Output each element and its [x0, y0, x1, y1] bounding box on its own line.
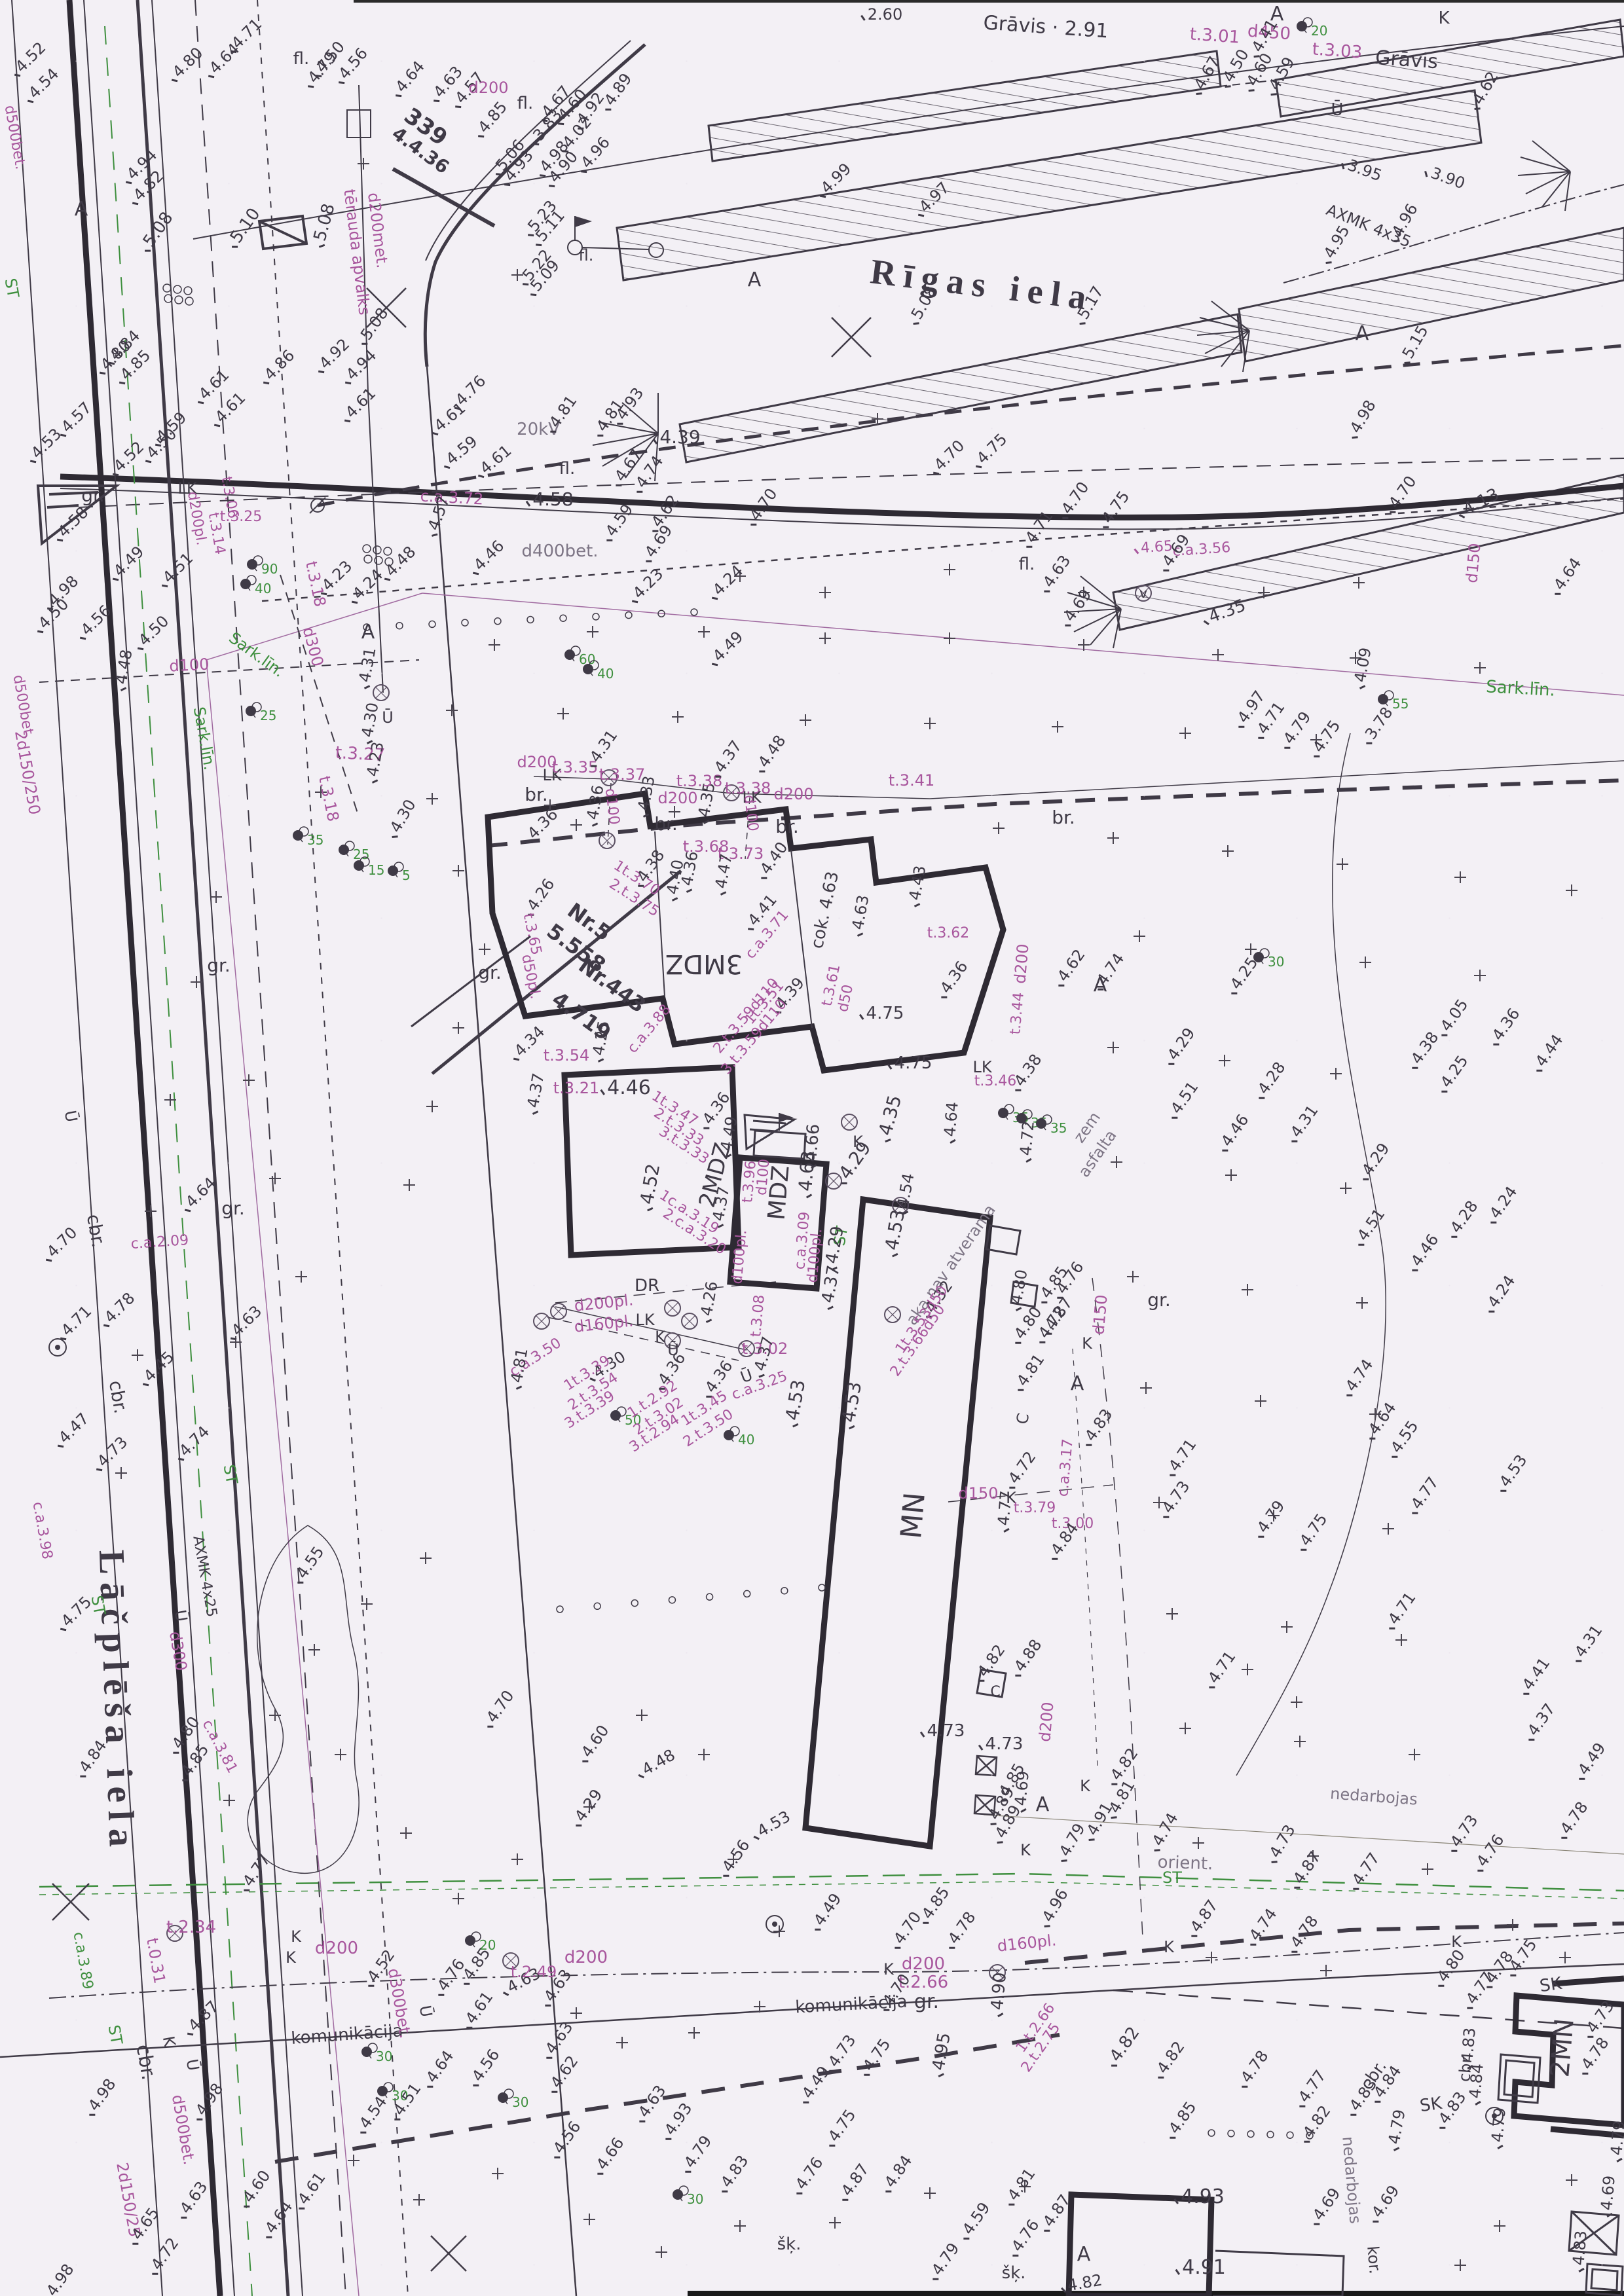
map-annotation: ST: [3, 277, 22, 299]
map-annotation: Ū: [172, 1609, 190, 1622]
spot-elevation-label: 4.74: [1089, 951, 1127, 995]
spot-elevation-label: 5.08: [309, 202, 337, 251]
spot-elevation-label: 4.84: [1466, 2063, 1486, 2107]
spot-elevation-label: 4.28: [1443, 1198, 1481, 1243]
map-annotation: t.0.31: [144, 1937, 168, 1985]
spot-elevation-label: 4.47: [711, 852, 734, 898]
map-annotation: t.3.44: [1008, 992, 1027, 1035]
spot-elevation-label: 4.28: [1250, 1059, 1288, 1104]
spot-elevation-label: 4.48: [632, 1747, 678, 1782]
spot-elevation-label: 4.75: [1094, 488, 1132, 533]
spot-elevation-label: 4.71: [1380, 1590, 1418, 1634]
spot-elevation-label: 4.51: [154, 550, 196, 592]
map-annotation: K: [883, 1961, 894, 1977]
map-annotation: ST: [221, 1463, 240, 1485]
spot-elevation-label: 4.73: [919, 1722, 965, 1740]
spot-elevation-label: 4.74: [1145, 1810, 1181, 1856]
spot-elevation-label: 4.24: [1482, 1184, 1520, 1228]
map-annotation: t.3.41: [889, 773, 934, 788]
spot-elevation-label: 4.67: [1187, 54, 1223, 100]
spot-elevation-label: 4.70: [742, 486, 780, 530]
spot-elevation-label: 4.64: [200, 41, 242, 82]
spot-elevation-label: 4.56: [72, 602, 114, 644]
spot-elevation-label: 4.43: [905, 864, 928, 910]
spot-elevation-label: 4.72: [1017, 1120, 1037, 1165]
spot-elevation-label: 4.24: [1480, 1273, 1518, 1317]
spot-elevation-label: 4.70: [38, 1224, 80, 1266]
spot-elevation-label: 4.87: [834, 2161, 872, 2206]
spot-elevation-label: 4.79: [1384, 2108, 1407, 2154]
map-annotation: C: [990, 1685, 1000, 1700]
spot-elevation-label: 4.70: [925, 437, 967, 479]
spot-elevation-label: 4.75: [52, 1594, 94, 1635]
spot-elevation-label: 4.79: [924, 2240, 962, 2285]
spot-elevation-label: 4.23: [624, 566, 666, 608]
spot-elevation-label: 4.77: [1344, 1850, 1382, 1895]
spot-elevation-label: 4.36: [519, 806, 561, 848]
map-annotation: šķ.: [777, 2236, 802, 2253]
spot-elevation-label: 4.69: [1364, 2183, 1402, 2227]
map-annotation: MN: [897, 1491, 930, 1540]
map-annotation: fl.: [1019, 556, 1035, 573]
spot-elevation-label: 4.53: [747, 1808, 793, 1844]
map-annotation: Ū: [62, 1109, 80, 1123]
spot-elevation-label: 4.80: [1430, 1947, 1467, 1992]
spot-elevation-label: 4.82: [1102, 2024, 1143, 2072]
spot-elevation-label: 4.58: [524, 490, 573, 509]
map-annotation: kor.: [1365, 2246, 1383, 2275]
spot-elevation-label: 4.69: [637, 522, 675, 567]
spot-elevation-label: 4.98: [1343, 397, 1378, 443]
spot-elevation-label: 4.53: [881, 1208, 908, 1260]
spot-elevation-label: 4.64: [941, 1101, 961, 1146]
spot-elevation-label: 4.44: [1528, 1032, 1566, 1076]
spot-elevation-label: 4.80: [164, 45, 206, 86]
spot-elevation-label: 4.64: [177, 1175, 219, 1216]
spot-elevation-label: 4.64: [418, 2048, 456, 2092]
spot-elevation-label: 4.48: [111, 648, 134, 694]
spot-elevation-label: 4.46: [465, 538, 507, 579]
spot-elevation-label: 4.79: [1052, 1821, 1088, 1867]
map-annotation: K: [291, 1929, 301, 1944]
spot-elevation-label: 4.73: [1154, 1478, 1192, 1523]
spot-elevation-label: 4.60: [235, 2168, 273, 2212]
spot-elevation-label: 4.81: [542, 393, 580, 437]
map-annotation: K: [1451, 1934, 1462, 1950]
map-annotation: d50: [836, 983, 856, 1013]
spot-elevation-label: 4.29: [567, 1787, 605, 1831]
spot-elevation-label: 4.37: [707, 738, 745, 782]
map-annotation: fl.: [517, 95, 534, 112]
spot-elevation-label: 4.64: [387, 58, 427, 101]
spot-elevation-label: 4.75: [1292, 1511, 1330, 1556]
spot-elevation-label: 4.59: [955, 2200, 993, 2244]
spot-elevation-label: 4.61: [337, 385, 378, 427]
map-annotation: d160pl.: [997, 1932, 1058, 1954]
spot-elevation-label: 4.71: [52, 1303, 94, 1345]
spot-elevation-label: 4.70: [1381, 473, 1419, 518]
spot-elevation-label: 4.95: [1317, 223, 1352, 268]
spot-elevation-label: 4.78: [96, 1290, 138, 1332]
spot-elevation-label: 4.05: [1433, 996, 1471, 1041]
map-annotation: K: [1438, 10, 1449, 27]
spot-elevation-label: 4.75: [1305, 718, 1343, 762]
spot-elevation-label: 4.49: [1570, 1740, 1608, 1785]
map-annotation: d200: [773, 786, 813, 802]
spot-elevation-label: 4.48: [377, 543, 418, 585]
spot-elevation-label: 4.75: [968, 431, 1010, 473]
spot-elevation-label: 4.89: [597, 71, 635, 115]
spot-elevation-label: 4.74: [1338, 1357, 1376, 1401]
spot-elevation-label: 4.84: [1043, 1520, 1081, 1565]
spot-elevation-label: 4.59: [598, 501, 636, 546]
spot-elevation-label: 4.78: [1283, 1913, 1321, 1958]
spot-elevation-label: 4.63: [223, 1303, 265, 1345]
map-annotation: br.: [654, 815, 678, 833]
map-annotation: d200: [1037, 1702, 1056, 1743]
spot-elevation-label: 4.64: [1546, 555, 1584, 600]
map-annotation: C: [1014, 1412, 1032, 1426]
spot-elevation-label: 4.56: [714, 1837, 752, 1882]
map-annotation: br.: [525, 786, 548, 804]
map-annotation: cbr.: [132, 2043, 158, 2081]
spot-elevation-label: 4.79: [1608, 2120, 1624, 2164]
spot-elevation-label: 4.61: [290, 2170, 328, 2214]
map-annotation: K: [853, 1134, 863, 1150]
map-annotation: d500bet.: [2, 104, 28, 170]
spot-elevation-label: 4.53: [838, 1380, 865, 1432]
map-annotation: d500bet.: [170, 2094, 197, 2166]
spot-elevation-label: 4.49: [794, 2064, 832, 2108]
spot-elevation-label: 4.79: [1488, 2107, 1508, 2151]
spot-elevation-label: 4.90: [988, 1972, 1009, 2020]
map-annotation: t.3.37: [599, 767, 645, 782]
spot-elevation-label: 4.63: [848, 894, 871, 939]
map-annotation: d100pl.: [730, 1230, 749, 1285]
map-annotation: d50pl.: [519, 953, 542, 1000]
map-annotation: t.3.18: [316, 774, 341, 823]
spot-elevation-label: 5.08: [136, 210, 176, 257]
map-annotation: Sark.līn.: [1486, 678, 1556, 699]
spot-elevation-label: 4.78: [1553, 1799, 1591, 1844]
spot-elevation-label: 4.76: [1004, 2217, 1042, 2261]
map-annotation: A: [1356, 324, 1369, 344]
spot-elevation-label: 4.62: [1466, 69, 1501, 115]
map-annotation: cbr.: [84, 1212, 107, 1248]
spot-elevation-label: 4.46: [599, 1078, 651, 1098]
spot-elevation-label: 4.51: [386, 2081, 424, 2125]
spot-elevation-label: 4.34: [506, 1023, 547, 1065]
spot-elevation-label: 4.96: [1035, 1886, 1071, 1932]
spot-elevation-label: 4.31: [355, 646, 378, 692]
spot-elevation-label: 4.75: [886, 1055, 932, 1072]
map-annotation: Sark.līn.: [191, 706, 218, 771]
spot-elevation-label: 3.95: [1338, 154, 1384, 183]
map-annotation: AXMK 4x25: [190, 1535, 218, 1618]
spot-elevation-label: 4.75: [858, 1005, 904, 1022]
map-annotation: K: [1082, 1336, 1092, 1351]
spot-elevation-label: 4.91: [1173, 2258, 1226, 2278]
spot-elevation-label: 4.26: [697, 1280, 720, 1326]
spot-elevation-label: 4.77: [1403, 1474, 1441, 1519]
spot-elevation-label: 4.40: [663, 858, 686, 904]
spot-elevation-label: 4.37: [1520, 1701, 1558, 1745]
spot-elevation-label: 4.61: [458, 1989, 496, 2033]
spot-elevation-label: 4.73: [1263, 1822, 1298, 1868]
map-annotation: A: [1036, 1795, 1050, 1815]
map-annotation: ST: [1162, 1870, 1182, 1886]
map-annotation: br.: [1052, 809, 1075, 827]
spot-elevation-label: 4.36: [932, 958, 970, 1003]
map-annotation: d200: [315, 1940, 358, 1957]
spot-elevation-label: 4.74: [1242, 1906, 1280, 1950]
spot-elevation-label: 4.47: [50, 1410, 92, 1452]
spot-elevation-label: 4.25: [1433, 1053, 1471, 1097]
spot-elevation-label: 4.36: [1485, 1006, 1522, 1050]
map-annotation: d200: [657, 790, 697, 806]
spot-elevation-label: 4.75: [855, 2036, 893, 2081]
map-annotation: K: [1020, 1842, 1031, 1858]
map-annotation: Ū: [1331, 101, 1343, 118]
map-annotation: d200: [1012, 943, 1031, 985]
map-annotation: gr.: [207, 957, 231, 975]
spot-elevation-label: 4.69: [1598, 2175, 1617, 2219]
map-annotation: A: [361, 623, 375, 642]
map-annotation: LK: [635, 1312, 654, 1328]
spot-elevation-label: 4.63: [1035, 553, 1073, 597]
spot-elevation-label: 4.82: [970, 1642, 1008, 1686]
spot-elevation-label: 4.69: [1305, 2185, 1343, 2230]
map-annotation: d100: [741, 794, 760, 832]
spot-elevation-label: 4.49: [105, 543, 147, 585]
map-annotation: Ū: [382, 710, 394, 725]
spot-elevation-label: 5.10: [223, 206, 263, 253]
map-annotation: t.2.49: [511, 1964, 557, 1980]
spot-elevation-label: 4.52: [637, 1162, 663, 1214]
spot-elevation-label: 4.93: [1172, 2187, 1225, 2207]
spot-elevation-label: 4.78: [940, 1909, 978, 1954]
spot-elevation-label: 4.81: [1000, 2166, 1038, 2210]
spot-elevation-label: 4.46: [1213, 1112, 1251, 1156]
map-annotation: t.3.03: [1312, 41, 1363, 61]
spot-elevation-label: 4.29: [1160, 1025, 1198, 1070]
spot-elevation-label: 4.51: [1163, 1079, 1201, 1123]
spot-elevation-label: 4.77: [995, 1490, 1014, 1535]
map-annotation: K: [1164, 1939, 1174, 1955]
map-annotation: gr.: [914, 1992, 939, 2012]
map-annotation: v: [1139, 587, 1147, 600]
spot-elevation-label: 4.49: [806, 1891, 844, 1935]
spot-elevation-label: 4.88: [1006, 1637, 1044, 1681]
spot-elevation-label: 4.49: [704, 629, 746, 670]
map-annotation: d150: [1464, 543, 1483, 584]
spot-elevation-label: 4.71: [1200, 1649, 1238, 1693]
map-annotation: Ū: [417, 2004, 435, 2018]
spot-elevation-label: 4.74: [170, 1423, 212, 1465]
spot-elevation-label: 4.76: [1469, 1832, 1507, 1876]
map-annotation: 2d150/250: [12, 729, 43, 816]
spot-elevation-label: 4.55: [289, 1544, 327, 1588]
map-annotation: c.a.3.98: [29, 1501, 54, 1560]
spot-elevation-label: 4.73: [977, 1736, 1024, 1753]
map-annotation: t.2.34: [166, 1919, 216, 1936]
map-annotation: 3MDZ: [665, 951, 743, 977]
map-annotation: nedarbojas: [1330, 1785, 1418, 1807]
map-annotation: Grāvis: [1375, 48, 1439, 73]
spot-elevation-label: 4.71: [1161, 1436, 1199, 1481]
spot-elevation-label: 3.78: [1357, 704, 1395, 749]
spot-elevation-label: 4.24: [704, 562, 746, 604]
map-annotation: d150: [1090, 1294, 1109, 1336]
map-annotation: t.3.65: [521, 912, 544, 957]
spot-elevation-label: 4.81: [507, 1347, 530, 1393]
map-annotation: br.: [775, 818, 799, 836]
spot-elevation-label: 4.78: [1574, 2035, 1612, 2079]
map-annotation: gr.: [81, 486, 105, 505]
map-annotation: A: [748, 270, 762, 290]
map-annotation: d500bet.: [10, 674, 36, 740]
spot-elevation-label: 4.70: [1054, 479, 1092, 524]
map-annotation: d200pl.: [574, 1292, 635, 1313]
spot-elevation-label: 4.99: [812, 160, 854, 202]
map-annotation: gr.: [1147, 1291, 1171, 1309]
map-annotation: gr.: [478, 964, 502, 982]
spot-elevation-label: 4.53: [1492, 1452, 1530, 1497]
spot-elevation-label: 4.82: [1149, 2039, 1187, 2083]
spot-elevation-label: 4.75: [821, 2107, 858, 2151]
spot-elevation-label: 4.13: [1453, 486, 1502, 522]
spot-elevation-label: 4.63: [631, 2083, 669, 2127]
spot-elevation-label: 4.85: [470, 99, 509, 142]
map-annotation: MDZ: [765, 1165, 793, 1221]
spot-elevation-label: 4.76: [788, 2155, 826, 2199]
spot-elevation-label: 4.31: [1283, 1102, 1321, 1147]
map-annotation: K: [655, 1329, 665, 1345]
spot-elevation-label: 4.36: [583, 784, 606, 829]
spot-elevation-label: 4.63: [172, 2179, 210, 2223]
spot-elevation-label: 4.71: [1018, 508, 1056, 553]
spot-elevation-label: 4.53: [22, 426, 64, 467]
spot-elevation-label: 4.83: [1077, 1406, 1115, 1451]
spot-elevation-label: 4.29: [1354, 1140, 1392, 1185]
spot-elevation-label: 4.41: [1515, 1655, 1553, 1700]
spot-elevation-label: 4.79: [1249, 1498, 1287, 1542]
spot-elevation-label: 5.15: [1395, 323, 1431, 369]
spot-elevation-label: 4.83: [1570, 2230, 1589, 2274]
spot-elevation-label: 4.72: [1001, 1449, 1039, 1493]
map-annotation: t.3.08: [749, 1294, 767, 1338]
spot-elevation-label: 4.45: [135, 1349, 177, 1391]
map-annotation: d160pl.: [574, 1313, 635, 1334]
spot-elevation-label: 4.87: [1183, 1897, 1221, 1942]
spot-elevation-label: 4.87: [1285, 1849, 1323, 1893]
map-annotation: t.3.18: [303, 560, 328, 608]
map-annotation: A: [75, 200, 88, 219]
spot-elevation-label: 4.31: [1567, 1622, 1605, 1667]
map-annotation: Sark.līn.: [227, 630, 287, 680]
map-annotation: t.3.01: [1189, 26, 1240, 46]
map-annotation: d200met.: [365, 192, 390, 269]
spot-elevation-label: 4.46: [1403, 1231, 1441, 1276]
spot-elevation-label: 4.35: [1198, 597, 1248, 629]
map-annotation: t.3.54: [544, 1048, 589, 1063]
map-annotation: t.3.25: [220, 510, 263, 524]
map-annotation: d400bet.: [521, 543, 598, 560]
spot-elevation-label: 4.39: [651, 428, 700, 446]
spot-elevation-label: 4.95: [929, 2032, 953, 2080]
spot-elevation-label: 4.86: [255, 347, 297, 389]
map-annotation: d300: [301, 625, 326, 668]
spot-elevation-label: 4.80: [1006, 1268, 1029, 1314]
map-annotation: c.a.3.89: [70, 1931, 94, 1990]
spot-elevation-label: 4.62: [1050, 947, 1088, 991]
map-annotation: Rīgas iela: [868, 253, 1096, 316]
spot-elevation-label: 4.73: [88, 1434, 130, 1476]
spot-elevation-label: 4.58: [49, 504, 91, 546]
spot-elevation-label: 4.85: [1161, 2099, 1199, 2143]
spot-elevation-label: 4.70: [479, 1688, 517, 1732]
spot-elevation-label: 4.60: [574, 1722, 612, 1767]
spot-elevation-label: 4.98: [188, 2081, 226, 2125]
spot-elevation-label: 4.36: [650, 1350, 688, 1394]
map-annotation: komunikācija: [795, 1994, 908, 2016]
map-annotation: Grāvis · 2.91: [983, 13, 1109, 41]
spot-elevation-label: 4.66: [589, 2135, 627, 2179]
map-annotation: K: [286, 1950, 296, 1965]
map-annotation: Ū: [184, 2058, 202, 2071]
map-annotation: cbr.: [106, 1379, 130, 1415]
map-annotation: d300: [167, 1630, 189, 1672]
spot-elevation-label: 4.09: [1350, 646, 1373, 692]
map-annotation: K: [160, 2035, 177, 2048]
spot-elevation-label: 4.50: [130, 613, 172, 655]
spot-elevation-label: 4.84: [877, 2153, 915, 2197]
map-annotation: SK: [1539, 1975, 1563, 1995]
map-annotation: gr.: [221, 1199, 245, 1218]
spot-elevation-label: 4.78: [1233, 2048, 1271, 2092]
spot-elevation-label: 4.82: [1058, 2272, 1103, 2295]
map-annotation: A: [1071, 1374, 1084, 1394]
spot-elevation-label: 4.77: [235, 1851, 273, 1896]
map-annotation: t.3.79: [1014, 1501, 1056, 1516]
spot-elevation-label: 4.73: [1443, 1812, 1481, 1857]
map-annotation: c.a.3.17: [1056, 1438, 1076, 1497]
spot-elevation-label: 4.37: [523, 1072, 546, 1118]
map-annotation: d200: [564, 1949, 608, 1966]
spot-elevation-label: 4.66: [802, 1123, 822, 1171]
spot-elevation-label: 4.98: [39, 2261, 77, 2296]
spot-elevation-label: 4.83: [713, 2153, 751, 2197]
spot-elevation-label: 4.87: [1035, 2192, 1073, 2236]
spot-elevation-label: 2.60: [859, 7, 902, 22]
map-annotation: komunikācija: [291, 2022, 404, 2047]
spot-elevation-label: 3.90: [1421, 162, 1467, 191]
map-annotation: fl.: [293, 50, 310, 67]
spot-elevation-label: 4.69: [1056, 587, 1094, 631]
map-annotation: d200: [468, 80, 508, 96]
spot-elevation-label: 4.72: [143, 2235, 181, 2280]
map-annotation: d200pl.: [185, 490, 208, 547]
map-annotation: t.3.62: [927, 926, 970, 941]
map-annotation: d100: [169, 656, 210, 674]
map-annotation: cok. 4.63: [809, 870, 841, 950]
spot-elevation-label: 4.70: [886, 1909, 924, 1954]
map-labels: Rīgas ielaLāčplēša iela2.60Grāvis · 2.91…: [0, 0, 1624, 2296]
spot-elevation-label: 4.97: [910, 179, 952, 221]
map-annotation: K: [1080, 1778, 1090, 1794]
spot-elevation-label: 4.54: [352, 2094, 390, 2138]
spot-elevation-label: 4.51: [1350, 1206, 1388, 1250]
